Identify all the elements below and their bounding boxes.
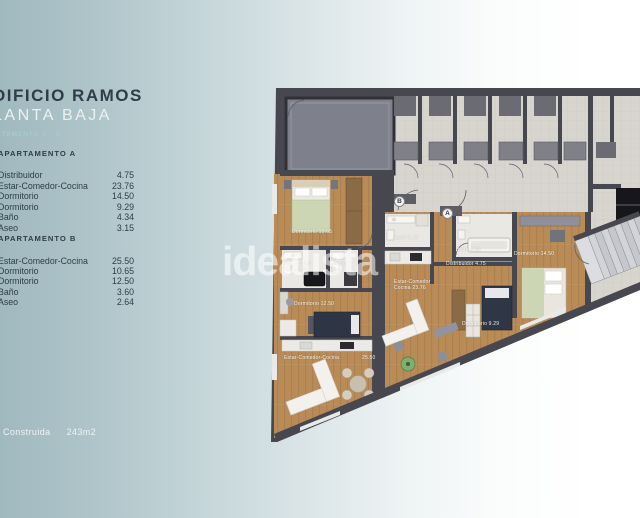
room-label: Aseo <box>0 297 18 307</box>
bed-double-b <box>284 180 338 232</box>
room-row: Baño3.60 <box>0 287 134 297</box>
apartments-line: RTAMENTO A - B <box>0 131 61 138</box>
room-area: 4.75 <box>117 170 134 180</box>
unit-marker-a: A <box>442 208 453 219</box>
room-label-distribuidor-a: Distribuidor 4.75 <box>446 262 486 268</box>
unit-marker-b: B <box>394 196 405 207</box>
section-a-rows: Distribuidor4.75 Estar-Comedor-Cocina23.… <box>0 170 134 234</box>
built-area-label: Construida <box>3 427 51 437</box>
room-area: 25.50 <box>112 256 134 266</box>
page: DIFICIO RAMOS LANTA BAJA RTAMENTO A - B … <box>0 0 640 518</box>
room-row: Aseo2.64 <box>0 297 134 307</box>
room-area: 3.60 <box>117 287 134 297</box>
room-area: 23.76 <box>112 181 134 191</box>
section-a-header: APARTAMENTO A <box>0 149 76 158</box>
room-label: Baño <box>0 212 19 222</box>
room-row: Dormitorio12.50 <box>0 276 134 286</box>
section-b-header: APARTAMENTO B <box>0 234 76 243</box>
built-area: Construida 243m2 <box>3 427 96 437</box>
room-label: Dormitorio <box>0 266 39 276</box>
room-row: Baño4.34 <box>0 212 134 223</box>
room-label: Baño <box>0 287 19 297</box>
room-area: 2.64 <box>117 297 134 307</box>
room-label-dormitorio-b2: Dormitorio 12.50 <box>294 302 334 308</box>
room-label-dormitorio-b1: Dormitorio 10.65 <box>292 230 332 236</box>
room-label-bano-a: Baño 4.34 <box>456 248 481 254</box>
room-label-estar-a-line2: Cocina 23.76 <box>394 286 426 292</box>
room-area: 14.50 <box>112 191 134 201</box>
built-area-value: 243m2 <box>67 427 97 437</box>
idealista-watermark: idealista <box>222 238 377 285</box>
room-area: 9.29 <box>117 202 134 212</box>
room-row: Dormitorio10.65 <box>0 266 134 276</box>
patio <box>286 98 394 174</box>
page-subtitle: LANTA BAJA <box>0 107 112 125</box>
wardrobe-b <box>346 178 362 244</box>
room-row: Estar-Comedor-Cocina23.76 <box>0 181 134 192</box>
bed-single-b <box>308 312 360 337</box>
section-b-rows: Estar-Comedor-Cocina25.50 Dormitorio10.6… <box>0 256 134 307</box>
room-label-estar-b: Estar-Comedor-Cocina <box>284 356 339 362</box>
page-title: DIFICIO RAMOS <box>0 86 143 106</box>
room-label: Dormitorio <box>0 191 39 201</box>
room-row: Dormitorio9.29 <box>0 202 134 213</box>
room-row: Distribuidor4.75 <box>0 170 134 181</box>
room-label-aseo-a: Aseo 3.15 <box>394 236 418 242</box>
room-area: 3.15 <box>117 223 134 233</box>
room-label-dormitorio-a1: Dormitorio 14.50 <box>514 252 554 258</box>
room-area: 4.34 <box>117 212 134 222</box>
room-label: Dormitorio <box>0 276 39 286</box>
room-label-dormitorio-a2: Dormitorio 9.29 <box>462 322 499 328</box>
room-row: Dormitorio14.50 <box>0 191 134 202</box>
room-label: Aseo <box>0 223 18 233</box>
room-area: 10.65 <box>112 266 134 276</box>
room-row: Aseo3.15 <box>0 223 134 234</box>
room-label: Dormitorio <box>0 202 39 212</box>
room-area-estar-b: 25.50 <box>362 356 376 362</box>
kitchen-a <box>385 251 431 264</box>
room-area: 12.50 <box>112 276 134 286</box>
room-label: Distribuidor <box>0 170 43 180</box>
room-row: Estar-Comedor-Cocina25.50 <box>0 256 134 266</box>
room-label: Estar-Comedor-Cocina <box>0 256 88 266</box>
room-label: Estar-Comedor-Cocina <box>0 181 88 191</box>
